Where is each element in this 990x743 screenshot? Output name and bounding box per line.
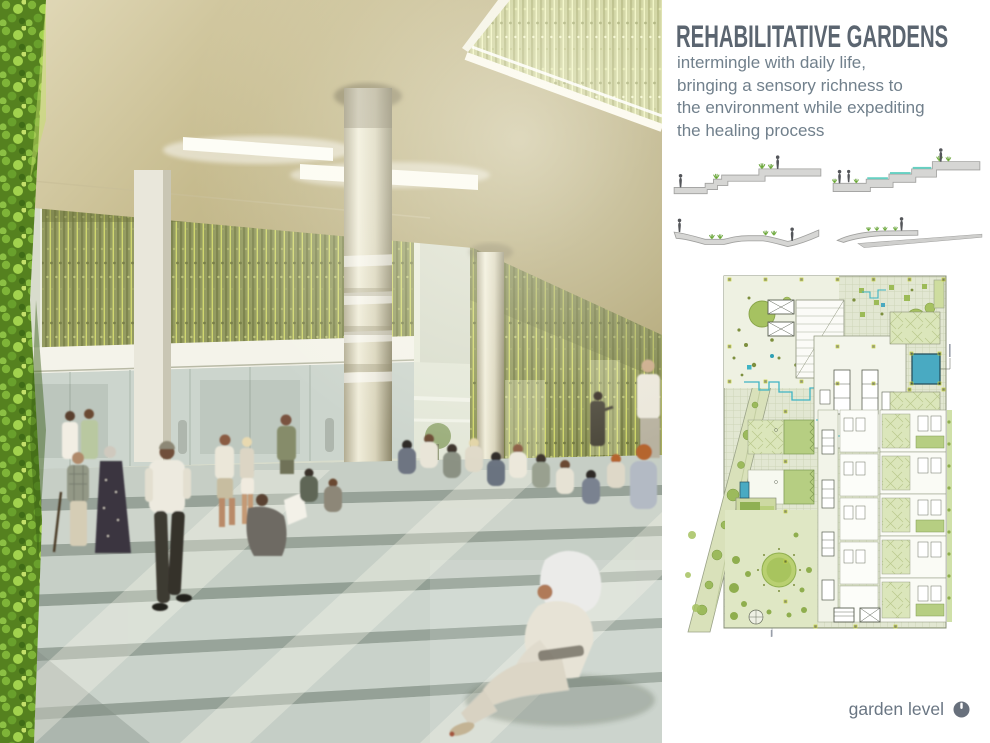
section-diagrams: [670, 146, 986, 256]
atrium-rendering: [0, 0, 662, 743]
page-title: REHABILITATIVE GARDENS: [676, 20, 948, 56]
plan-corridor: [818, 410, 838, 622]
plan-inner-rooms: [840, 410, 878, 622]
square-column-left: [134, 170, 171, 462]
plan-patient-wing: [880, 410, 952, 622]
level-caption-text: garden level: [849, 699, 944, 720]
info-panel: REHABILITATIVE GARDENS intermingle with …: [662, 0, 990, 743]
section-diagram-stepped-terraces: [670, 146, 825, 200]
north-arrow-icon: [953, 701, 970, 718]
presentation-board: REHABILITATIVE GARDENS intermingle with …: [0, 0, 990, 743]
plan-annotation-leader: [771, 628, 773, 637]
plan-lower-garden: [725, 510, 817, 627]
description-text: intermingle with daily life, bringing a …: [677, 52, 929, 142]
section-diagram-sloped-ramp: [829, 202, 984, 256]
garden-level-floor-plan: [684, 270, 954, 638]
section-diagram-undulating-ramp: [670, 202, 825, 256]
level-caption: garden level: [849, 699, 970, 720]
section-diagram-water-terraces: [829, 146, 984, 200]
